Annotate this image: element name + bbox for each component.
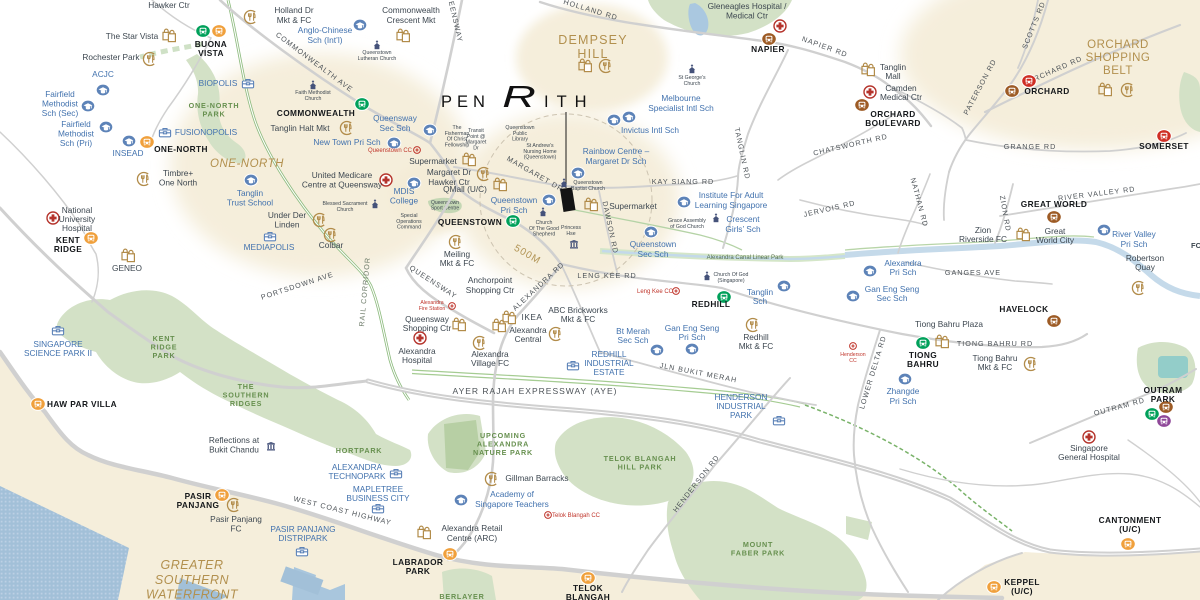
svg-text:Melbourne: Melbourne	[661, 93, 701, 103]
svg-text:Sch: Sch	[753, 296, 768, 306]
svg-text:Church: Church	[305, 96, 322, 102]
svg-text:Sch (Pri): Sch (Pri)	[60, 138, 93, 148]
svg-text:Mkt & FC: Mkt & FC	[978, 362, 1013, 372]
svg-text:Tanglin Halt Mkt: Tanglin Halt Mkt	[270, 123, 330, 133]
svg-text:of God Church: of God Church	[670, 224, 704, 230]
svg-text:Sch (Sec): Sch (Sec)	[42, 108, 79, 118]
svg-text:(U/C): (U/C)	[1011, 586, 1033, 596]
svg-text:GREAT WORLD: GREAT WORLD	[1021, 199, 1087, 209]
svg-text:Pri Sch: Pri Sch	[679, 332, 706, 342]
svg-text:PANJANG: PANJANG	[177, 500, 220, 510]
svg-text:Anchorpoint: Anchorpoint	[468, 275, 513, 285]
svg-text:Pri Sch: Pri Sch	[890, 396, 917, 406]
svg-text:HILL PARK: HILL PARK	[618, 463, 663, 472]
svg-text:Trust School: Trust School	[227, 197, 273, 207]
svg-text:Rochester Park: Rochester Park	[82, 52, 140, 62]
svg-text:Rainbow Centre –: Rainbow Centre –	[583, 146, 650, 156]
svg-text:World City: World City	[1036, 235, 1075, 245]
svg-text:ITH: ITH	[544, 93, 595, 111]
svg-text:PARK: PARK	[730, 410, 752, 420]
svg-text:FC: FC	[1191, 241, 1200, 250]
svg-text:IKEA: IKEA	[522, 312, 543, 322]
svg-text:Fire Station: Fire Station	[419, 306, 446, 312]
svg-text:BIOPOLIS: BIOPOLIS	[199, 78, 238, 88]
svg-text:Quay: Quay	[1135, 262, 1156, 272]
svg-text:Holland Dr: Holland Dr	[274, 5, 313, 15]
svg-text:Specialist Intl Sch: Specialist Intl Sch	[648, 103, 714, 113]
svg-text:Village FC: Village FC	[471, 358, 509, 368]
svg-text:Institute For Adult: Institute For Adult	[699, 190, 764, 200]
svg-text:FC: FC	[230, 523, 241, 533]
svg-text:NAPIER: NAPIER	[751, 44, 785, 54]
svg-text:Tiong Bahru Plaza: Tiong Bahru Plaza	[915, 319, 983, 329]
svg-text:Shopping Ctr: Shopping Ctr	[466, 285, 515, 295]
svg-text:Riverside FC: Riverside FC	[959, 234, 1007, 244]
svg-text:R: R	[502, 80, 536, 115]
svg-text:Queenstown: Queenstown	[630, 239, 677, 249]
svg-text:Pri Sch: Pri Sch	[501, 205, 528, 215]
svg-text:SOMERSET: SOMERSET	[1139, 141, 1189, 151]
svg-text:Shepherd: Shepherd	[533, 232, 556, 238]
svg-text:GANGES AVE: GANGES AVE	[945, 268, 1001, 277]
svg-text:PARK: PARK	[152, 351, 175, 360]
svg-text:DISTRIPARK: DISTRIPARK	[278, 533, 328, 543]
svg-text:COMMONWEALTH: COMMONWEALTH	[277, 108, 355, 118]
svg-text:Hospital: Hospital	[402, 355, 432, 365]
svg-text:CC: CC	[849, 358, 857, 364]
svg-text:PARK: PARK	[1151, 394, 1176, 404]
svg-text:VISTA: VISTA	[198, 48, 224, 58]
svg-text:(Singapore): (Singapore)	[717, 278, 744, 284]
svg-text:Linden: Linden	[275, 219, 300, 229]
svg-text:PEN: PEN	[441, 93, 490, 111]
svg-text:Pri Sch: Pri Sch	[1121, 239, 1148, 249]
svg-text:PARK: PARK	[406, 566, 431, 576]
svg-text:TECHNOPARK: TECHNOPARK	[328, 471, 385, 481]
svg-text:INSEAD: INSEAD	[113, 148, 144, 158]
svg-text:Hawker Ctr: Hawker Ctr	[148, 0, 190, 10]
svg-text:Supermarket: Supermarket	[409, 156, 457, 166]
svg-text:Singapore Teachers: Singapore Teachers	[475, 499, 549, 509]
svg-text:Sec Sch: Sec Sch	[618, 335, 649, 345]
svg-text:Margaret Dr: Margaret Dr	[427, 167, 471, 177]
svg-text:Centre at Queensway: Centre at Queensway	[302, 179, 383, 189]
svg-text:DEMPSEY: DEMPSEY	[558, 33, 628, 47]
svg-text:BELT: BELT	[1103, 65, 1133, 77]
svg-text:ONE-NORTH: ONE-NORTH	[210, 158, 284, 170]
svg-text:(Queenstown): (Queenstown)	[524, 155, 557, 161]
svg-text:GREATER: GREATER	[161, 558, 224, 572]
svg-text:ORCHARD: ORCHARD	[1087, 39, 1149, 51]
svg-text:Queenstown CC: Queenstown CC	[368, 148, 413, 154]
svg-text:Sch (Int’l): Sch (Int’l)	[307, 35, 342, 45]
svg-text:SOUTHERN: SOUTHERN	[155, 573, 230, 587]
svg-text:RIDGES: RIDGES	[230, 399, 262, 408]
svg-text:Queenstown: Queenstown	[491, 195, 538, 205]
svg-text:Invictus Intl Sch: Invictus Intl Sch	[621, 125, 679, 135]
svg-text:WATERFRONT: WATERFRONT	[146, 588, 239, 600]
svg-text:Anglo-Chinese: Anglo-Chinese	[298, 25, 353, 35]
svg-text:Colbar: Colbar	[319, 240, 344, 250]
svg-text:Medical Ctr: Medical Ctr	[880, 92, 922, 102]
svg-text:Church: Church	[684, 81, 701, 87]
svg-text:AYER RAJAH EXPRESSWAY (AYE): AYER RAJAH EXPRESSWAY (AYE)	[453, 386, 618, 396]
svg-text:GRANGE RD: GRANGE RD	[1004, 142, 1057, 151]
svg-text:Centre (ARC): Centre (ARC)	[447, 533, 497, 543]
svg-text:LENG KEE RD: LENG KEE RD	[577, 271, 636, 280]
svg-text:Alexandra Retail: Alexandra Retail	[442, 523, 503, 533]
svg-text:ORCHARD: ORCHARD	[1024, 86, 1069, 96]
svg-text:SHOPPING: SHOPPING	[1086, 52, 1151, 64]
svg-text:GENEO: GENEO	[112, 263, 143, 273]
svg-text:Queensway: Queensway	[373, 113, 418, 123]
svg-text:New Town Pri Sch: New Town Pri Sch	[313, 137, 381, 147]
svg-text:Medical Ctr: Medical Ctr	[726, 10, 768, 20]
svg-text:Dr: Dr	[473, 145, 479, 151]
svg-text:Learning Singapore: Learning Singapore	[695, 200, 768, 210]
svg-text:Church: Church	[337, 207, 354, 213]
svg-text:HAW PAR VILLA: HAW PAR VILLA	[47, 399, 117, 409]
svg-text:TIONG BAHRU RD: TIONG BAHRU RD	[957, 339, 1033, 348]
svg-text:FUSIONOPOLIS: FUSIONOPOLIS	[175, 127, 238, 137]
svg-text:Crescent Mkt: Crescent Mkt	[387, 15, 437, 25]
svg-text:HORTPARK: HORTPARK	[336, 446, 383, 455]
svg-text:Sec Sch: Sec Sch	[380, 123, 411, 133]
svg-text:Margaret Dr Sch: Margaret Dr Sch	[586, 156, 647, 166]
svg-text:The Star Vista: The Star Vista	[106, 31, 159, 41]
svg-text:Central: Central	[515, 334, 542, 344]
svg-text:BERLAYER: BERLAYER	[439, 592, 484, 600]
svg-text:Command: Command	[397, 225, 421, 231]
svg-text:FABER PARK: FABER PARK	[731, 549, 785, 558]
svg-text:River Valley: River Valley	[1112, 229, 1156, 239]
svg-text:Leng Kee CC: Leng Kee CC	[637, 289, 674, 295]
svg-text:Library: Library	[512, 137, 528, 143]
svg-text:Alexandra Canal Linear Park: Alexandra Canal Linear Park	[707, 255, 785, 261]
svg-text:REDHILL: REDHILL	[692, 299, 731, 309]
svg-text:Bukit Chandu: Bukit Chandu	[209, 444, 259, 454]
svg-text:Mkt & FC: Mkt & FC	[440, 258, 475, 268]
svg-text:BOULEVARD: BOULEVARD	[865, 118, 921, 128]
svg-text:Mkt & FC: Mkt & FC	[561, 314, 596, 324]
svg-text:Hospital: Hospital	[62, 223, 92, 233]
svg-text:KAY SIANG RD: KAY SIANG RD	[652, 177, 714, 186]
svg-text:Supermarket: Supermarket	[609, 201, 657, 211]
svg-text:MEDIAPOLIS: MEDIAPOLIS	[244, 242, 295, 252]
svg-text:Gillman Barracks: Gillman Barracks	[505, 473, 568, 483]
svg-text:Mall: Mall	[885, 71, 900, 81]
svg-text:Lutheran Church: Lutheran Church	[358, 56, 397, 62]
svg-text:BUSINESS CITY: BUSINESS CITY	[346, 493, 410, 503]
svg-text:Baptist Church: Baptist Church	[571, 186, 605, 192]
svg-text:General Hospital: General Hospital	[1058, 452, 1120, 462]
svg-text:Crescent: Crescent	[726, 214, 760, 224]
svg-text:NATURE PARK: NATURE PARK	[473, 448, 533, 457]
svg-text:Shopping Ctr: Shopping Ctr	[403, 323, 452, 333]
svg-text:BLANGAH: BLANGAH	[566, 592, 610, 600]
svg-text:Pri Sch: Pri Sch	[890, 267, 917, 277]
svg-text:Commonwealth: Commonwealth	[382, 5, 440, 15]
svg-text:Sec Sch: Sec Sch	[877, 293, 908, 303]
svg-text:ACJC: ACJC	[92, 69, 114, 79]
svg-text:BAHRU: BAHRU	[907, 359, 939, 369]
svg-text:HAVELOCK: HAVELOCK	[999, 304, 1048, 314]
svg-text:ONE-NORTH: ONE-NORTH	[154, 144, 208, 154]
svg-text:Zhangde: Zhangde	[887, 386, 920, 396]
svg-text:Hse: Hse	[566, 231, 575, 237]
svg-text:PARK: PARK	[202, 110, 225, 119]
svg-text:College: College	[390, 195, 419, 205]
svg-text:QMall (U/C): QMall (U/C)	[443, 184, 487, 194]
svg-text:(U/C): (U/C)	[1119, 524, 1141, 534]
svg-text:QUEENSTOWN: QUEENSTOWN	[438, 217, 502, 227]
svg-text:Mkt & FC: Mkt & FC	[277, 15, 312, 25]
svg-text:ESTATE: ESTATE	[593, 367, 625, 377]
svg-text:SCIENCE PARK II: SCIENCE PARK II	[24, 348, 92, 358]
svg-text:Mkt & FC: Mkt & FC	[739, 341, 774, 351]
svg-text:RIDGE: RIDGE	[54, 244, 82, 254]
svg-text:Sec Sch: Sec Sch	[638, 249, 669, 259]
svg-text:Girls’ Sch: Girls’ Sch	[725, 224, 761, 234]
svg-text:Telok Blangah CC: Telok Blangah CC	[552, 513, 601, 519]
svg-text:One North: One North	[159, 177, 198, 187]
svg-text:Academy of: Academy of	[490, 489, 535, 499]
